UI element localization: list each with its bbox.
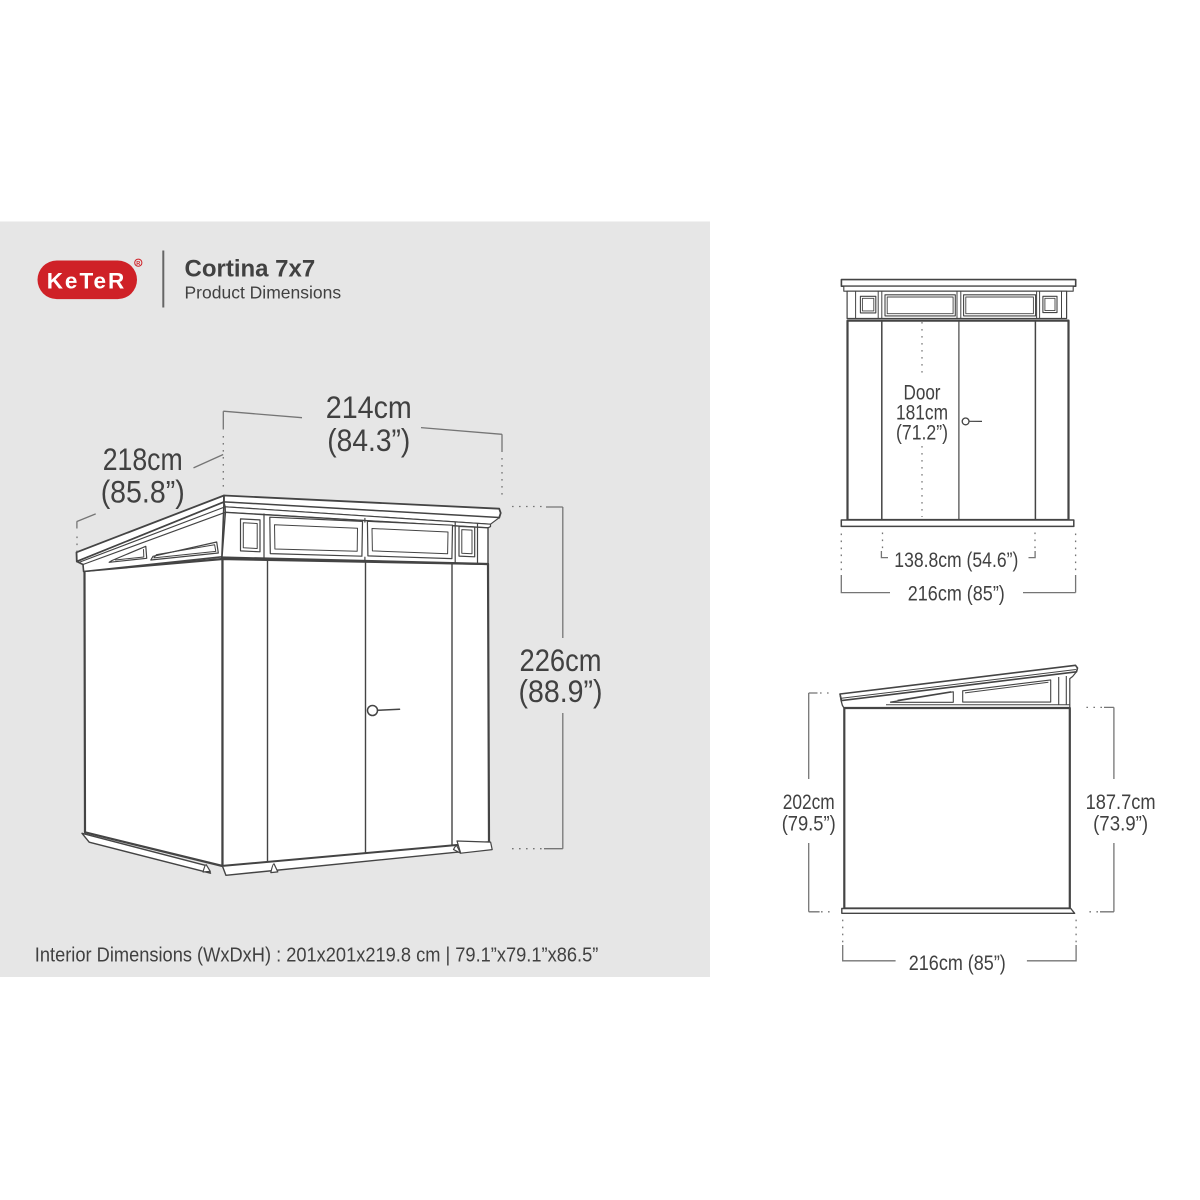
- svg-text:(84.3”): (84.3”): [327, 422, 410, 458]
- svg-text:187.7cm: 187.7cm: [1086, 791, 1156, 814]
- svg-text:218cm: 218cm: [103, 441, 183, 477]
- svg-text:(73.9”): (73.9”): [1093, 812, 1148, 835]
- svg-text:(71.2”): (71.2”): [896, 422, 948, 445]
- svg-text:Cortina 7x7: Cortina 7x7: [185, 256, 316, 283]
- svg-text:(88.9”): (88.9”): [519, 673, 603, 709]
- svg-text:R: R: [136, 261, 140, 267]
- svg-text:(79.5”): (79.5”): [782, 812, 836, 835]
- svg-text:KeTeR: KeTeR: [47, 269, 127, 294]
- svg-text:216cm (85”): 216cm (85”): [908, 583, 1005, 606]
- svg-text:216cm (85”): 216cm (85”): [909, 952, 1006, 975]
- svg-text:202cm: 202cm: [783, 791, 835, 814]
- svg-text:Interior Dimensions (WxDxH) :: Interior Dimensions (WxDxH) : 201x201x21…: [35, 944, 599, 967]
- svg-text:(85.8”): (85.8”): [101, 474, 185, 510]
- svg-text:138.8cm (54.6”): 138.8cm (54.6”): [894, 549, 1018, 572]
- svg-text:214cm: 214cm: [326, 389, 412, 425]
- svg-text:Product Dimensions: Product Dimensions: [185, 283, 342, 303]
